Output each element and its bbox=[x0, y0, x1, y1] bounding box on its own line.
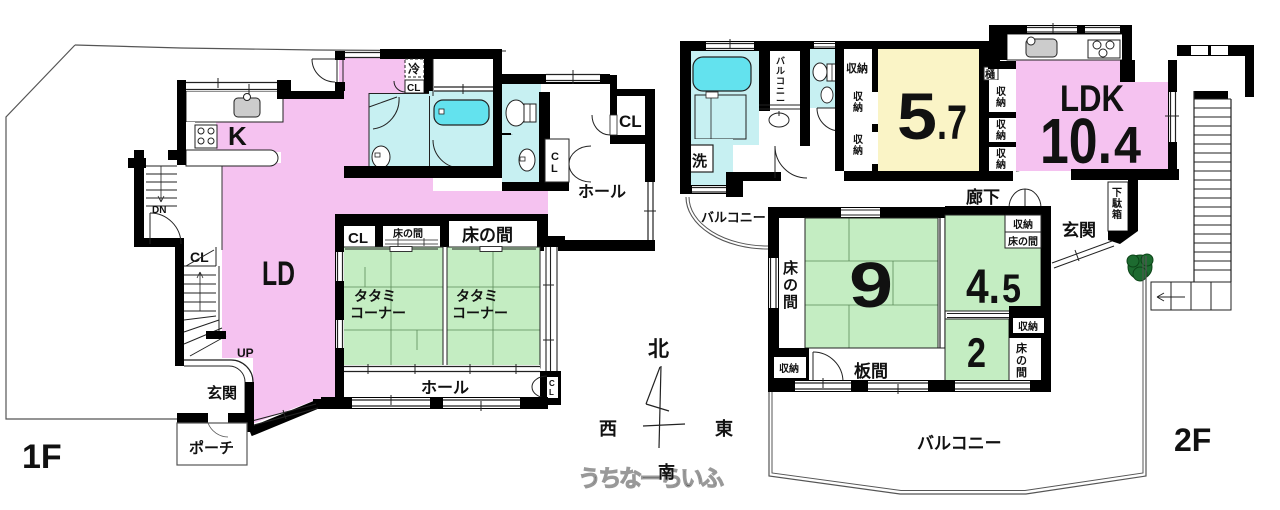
svg-text:南: 南 bbox=[658, 462, 675, 482]
svg-text:2: 2 bbox=[967, 329, 986, 376]
svg-text:コ: コ bbox=[776, 76, 785, 86]
svg-text:収: 収 bbox=[996, 86, 1007, 98]
svg-text:納: 納 bbox=[996, 158, 1006, 171]
svg-text:バルコニー: バルコニー bbox=[701, 210, 766, 225]
svg-text:玄関: 玄関 bbox=[1062, 220, 1096, 240]
svg-text:玄関: 玄関 bbox=[207, 384, 237, 402]
svg-text:収納: 収納 bbox=[779, 362, 799, 375]
svg-text:5: 5 bbox=[897, 79, 937, 153]
svg-text:洗: 洗 bbox=[692, 152, 707, 170]
svg-text:コーナー: コーナー bbox=[350, 305, 406, 321]
svg-text:CL: CL bbox=[348, 230, 368, 247]
svg-text:K: K bbox=[228, 121, 247, 151]
svg-text:収納: 収納 bbox=[1018, 320, 1038, 333]
svg-text:CL: CL bbox=[407, 83, 420, 94]
svg-text:ポーチ: ポーチ bbox=[189, 439, 234, 457]
svg-text:収: 収 bbox=[853, 91, 864, 103]
svg-text:の: の bbox=[1016, 354, 1027, 367]
svg-text:C: C bbox=[551, 151, 559, 163]
svg-text:箱: 箱 bbox=[1112, 208, 1122, 221]
svg-text:床の間: 床の間 bbox=[462, 225, 513, 245]
svg-text:収: 収 bbox=[996, 148, 1007, 160]
svg-text:うちなーらいふ: うちなーらいふ bbox=[578, 465, 724, 491]
svg-text:西: 西 bbox=[599, 419, 617, 439]
svg-text:廊下: 廊下 bbox=[966, 187, 1000, 207]
svg-text:.7: .7 bbox=[937, 97, 967, 150]
svg-text:収納: 収納 bbox=[1013, 218, 1033, 231]
svg-text:C: C bbox=[549, 379, 555, 388]
svg-text:9: 9 bbox=[849, 249, 893, 321]
svg-text:納: 納 bbox=[853, 101, 863, 114]
svg-text:間: 間 bbox=[783, 294, 798, 311]
svg-text:納: 納 bbox=[996, 129, 1006, 142]
svg-text:樋: 樋 bbox=[985, 68, 995, 81]
svg-text:5: 5 bbox=[1002, 267, 1021, 311]
svg-text:タタミ: タタミ bbox=[354, 288, 396, 304]
svg-text:L: L bbox=[549, 388, 554, 397]
svg-text:駄: 駄 bbox=[1112, 197, 1123, 210]
svg-text:ル: ル bbox=[776, 66, 785, 76]
svg-text:LD: LD bbox=[262, 255, 295, 293]
svg-text:の: の bbox=[783, 277, 798, 294]
svg-text:納: 納 bbox=[996, 96, 1006, 109]
svg-text:コーナー: コーナー bbox=[452, 305, 508, 321]
svg-text:板間: 板間 bbox=[854, 361, 888, 381]
svg-text:北: 北 bbox=[648, 338, 669, 361]
svg-text:収: 収 bbox=[853, 134, 864, 146]
svg-text:バルコニー: バルコニー bbox=[917, 434, 1002, 453]
svg-text:冷: 冷 bbox=[408, 61, 420, 76]
svg-text:ニ: ニ bbox=[776, 86, 785, 96]
svg-text:4: 4 bbox=[1114, 117, 1141, 175]
svg-text:下: 下 bbox=[1112, 187, 1122, 199]
svg-text:床の間: 床の間 bbox=[1008, 235, 1038, 248]
svg-text:2F: 2F bbox=[1174, 422, 1211, 458]
svg-text:タタミ: タタミ bbox=[456, 288, 498, 304]
svg-text:床: 床 bbox=[783, 259, 799, 277]
svg-text:東: 東 bbox=[715, 418, 733, 439]
svg-text:L: L bbox=[551, 163, 558, 175]
svg-text:10.: 10. bbox=[1040, 105, 1112, 177]
svg-text:CL: CL bbox=[619, 112, 642, 131]
svg-text:収納: 収納 bbox=[846, 61, 868, 75]
svg-text:床の間: 床の間 bbox=[393, 227, 423, 240]
svg-text:バ: バ bbox=[776, 56, 785, 66]
svg-text:床: 床 bbox=[1016, 341, 1028, 355]
svg-text:ホール: ホール bbox=[578, 183, 626, 201]
svg-text:1F: 1F bbox=[22, 438, 62, 476]
svg-text:間: 間 bbox=[1016, 366, 1027, 379]
svg-text:UP: UP bbox=[237, 346, 254, 360]
svg-text:ホール: ホール bbox=[421, 379, 469, 397]
svg-text:4.: 4. bbox=[966, 261, 1000, 314]
svg-text:納: 納 bbox=[853, 144, 863, 157]
svg-text:収: 収 bbox=[996, 119, 1007, 131]
